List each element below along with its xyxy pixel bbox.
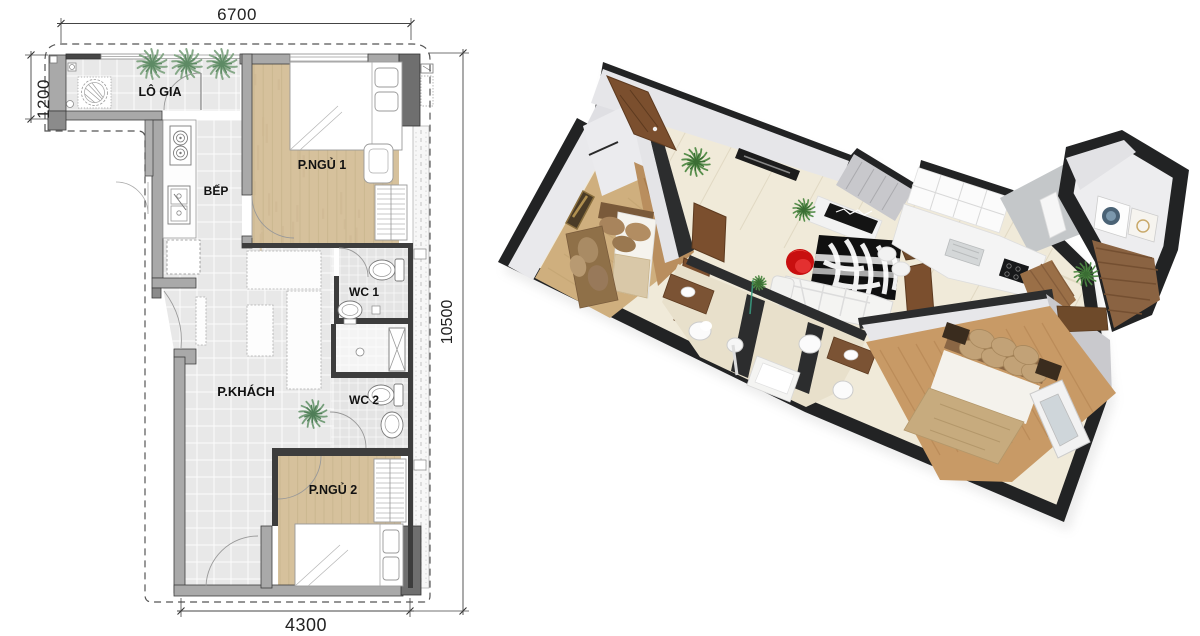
svg-text:LÔ GIA: LÔ GIA: [138, 84, 181, 99]
svg-text:6700: 6700: [217, 5, 257, 24]
svg-text:BẾP: BẾP: [204, 183, 229, 198]
svg-text:WC 1: WC 1: [349, 285, 379, 299]
svg-text:WC 2: WC 2: [349, 393, 379, 407]
svg-text:P.NGỦ 2: P.NGỦ 2: [309, 482, 357, 497]
svg-text:1200: 1200: [34, 79, 53, 119]
svg-text:P.NGỦ 1: P.NGỦ 1: [298, 157, 346, 172]
svg-text:4300: 4300: [285, 615, 327, 635]
svg-text:10500: 10500: [439, 300, 456, 345]
svg-text:P.KHÁCH: P.KHÁCH: [217, 384, 275, 399]
